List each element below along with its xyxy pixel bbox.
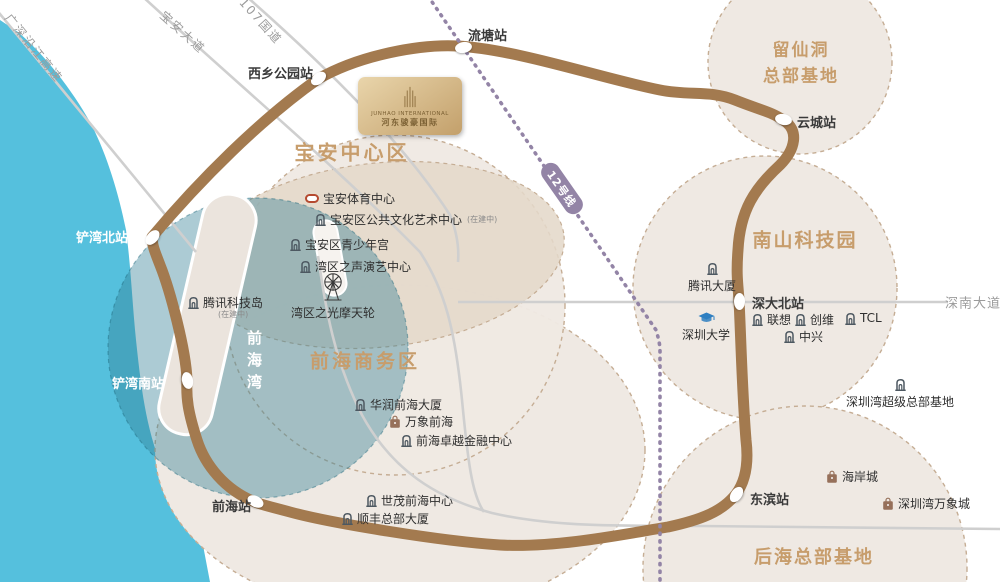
poi-label: 创维 — [810, 311, 834, 328]
stadium-icon — [305, 194, 319, 203]
poi-tencent-island-note: (在建中) — [218, 309, 248, 320]
station-label-chanwan-south: 铲湾南站 — [112, 373, 164, 392]
poi-skyworth: 创维 — [795, 311, 834, 328]
poi-sf-headquarters: 顺丰总部大厦 — [342, 510, 429, 527]
station-label-xixiang-park: 西乡公园站 — [248, 63, 313, 82]
building-icon — [188, 296, 199, 309]
district-title-liuxiandong-line2: 总部基地 — [763, 62, 839, 87]
building-icon — [315, 213, 326, 226]
shopping-bag-icon — [389, 415, 401, 429]
poi-zte: 中兴 — [784, 328, 823, 345]
poi-label: TCL — [860, 311, 882, 325]
district-title-nanshan-tech: 南山科技园 — [752, 226, 857, 253]
graduation-cap-icon — [697, 312, 714, 324]
building-icon — [366, 494, 377, 507]
building-icon — [342, 512, 353, 525]
poi-label: 华润前海大厦 — [370, 396, 442, 413]
station-label-liutang: 流塘站 — [468, 25, 507, 44]
poi-label: 宝安体育中心 — [323, 190, 395, 207]
station-label-qianhai: 前海站 — [212, 496, 251, 515]
poi-szbay-super-hq: 深圳湾超级总部基地 — [846, 378, 954, 410]
district-title-baoan-center: 宝安中心区 — [295, 137, 410, 166]
building-icon — [845, 312, 856, 325]
bay-label: 前海湾 — [244, 330, 265, 396]
poi-label: 联想 — [767, 311, 791, 328]
district-title-qianhai-business: 前海商务区 — [310, 347, 420, 374]
building-icon — [355, 398, 366, 411]
poi-label: 世茂前海中心 — [381, 492, 453, 509]
poi-label: 深圳湾万象城 — [898, 495, 970, 512]
poi-szbay-mixc: 深圳湾万象城 — [882, 495, 970, 512]
road-label-shennan-avenue: 深南大道 — [945, 293, 1000, 312]
map-background — [0, 0, 1000, 582]
station-label-yuncheng: 云城站 — [797, 112, 836, 131]
poi-label: 海岸城 — [842, 468, 878, 485]
map-canvas: 广深沿江高速 宝安大道 107国道 深南大道 宝安中心区 前海商务区 南山科技园… — [0, 0, 1000, 582]
poi-label: 宝安区青少年宫 — [305, 236, 389, 253]
station-marker-shenda-north — [734, 293, 745, 310]
station-label-chanwan-north: 铲湾北站 — [76, 227, 128, 246]
ferris-wheel-icon — [320, 271, 346, 303]
poi-coastal-city: 海岸城 — [826, 468, 878, 485]
poi-note: (在建中) — [467, 214, 497, 225]
district-title-houhai: 后海总部基地 — [754, 543, 874, 569]
building-icon — [752, 313, 763, 326]
poi-baoan-youth-palace: 宝安区青少年宫 — [290, 236, 389, 253]
poi-shenzhen-university: 深圳大学 — [682, 312, 730, 343]
poi-tencent-tower: 腾讯大厦 — [688, 262, 736, 294]
poi-label: 中兴 — [799, 328, 823, 345]
poi-bay-wheel-label: 湾区之光摩天轮 — [291, 304, 375, 321]
poi-label: 腾讯大厦 — [688, 277, 736, 294]
logo-card: JUNHAO INTERNATIONAL 河东骏豪国际 — [358, 77, 462, 135]
district-title-liuxiandong-line1: 留仙洞 — [773, 36, 830, 61]
poi-bay-voice-center: 湾区之声演艺中心 — [300, 258, 411, 275]
building-icon — [300, 260, 311, 273]
poi-huarun-tower: 华润前海大厦 — [355, 396, 442, 413]
building-icon — [401, 434, 412, 447]
poi-label: 深圳湾超级总部基地 — [846, 393, 954, 410]
poi-label: 前海卓越金融中心 — [416, 432, 512, 449]
poi-label: 深圳大学 — [682, 326, 730, 343]
shopping-bag-icon — [882, 497, 894, 511]
building-icon — [795, 313, 806, 326]
logo-building-icon — [398, 85, 422, 109]
building-icon — [706, 262, 717, 275]
building-icon — [290, 238, 301, 251]
poi-lenovo: 联想 — [752, 311, 791, 328]
poi-baoan-sports-center: 宝安体育中心 — [305, 190, 395, 207]
building-icon — [784, 330, 795, 343]
poi-mixc-qianhai: 万象前海 — [389, 413, 453, 430]
building-icon — [894, 378, 905, 391]
shopping-bag-icon — [826, 470, 838, 484]
poi-label: 顺丰总部大厦 — [357, 510, 429, 527]
poi-label: 万象前海 — [405, 413, 453, 430]
poi-baoan-art-center: 宝安区公共文化艺术中心 (在建中) — [315, 211, 497, 228]
poi-shimao-center: 世茂前海中心 — [366, 492, 453, 509]
poi-excellence-finance-center: 前海卓越金融中心 — [401, 432, 512, 449]
station-label-shenda-north: 深大北站 — [752, 293, 804, 312]
poi-tcl: TCL — [845, 311, 882, 325]
logo-brand-cn: 河东骏豪国际 — [382, 117, 439, 128]
poi-label: 宝安区公共文化艺术中心 — [330, 211, 462, 228]
station-label-dongbin: 东滨站 — [750, 489, 789, 508]
